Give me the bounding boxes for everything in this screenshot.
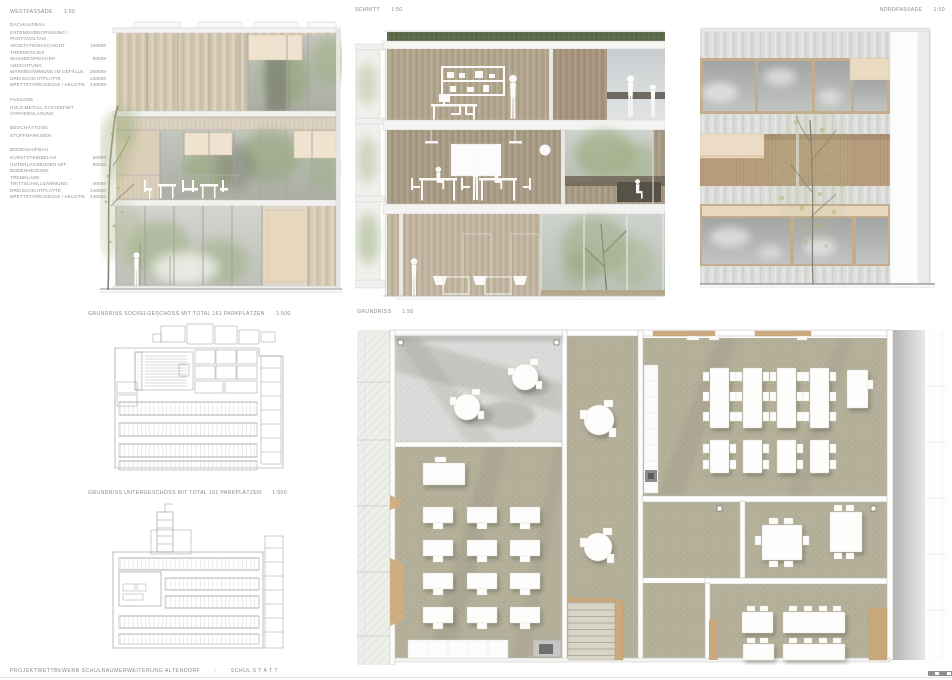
footer-separator: - [214,668,216,674]
fabric-blind [850,58,890,80]
fabric-blind [248,35,302,60]
legend-section-shading: BESCHATTUNG STOFFMARKISEN [10,126,106,139]
title-label: GRUNDRISS [357,309,391,315]
wood-door-frame [709,620,718,660]
balcony-railing-terrace [116,175,240,200]
sockelgeschoss-title: GRUNDRISS SOCKELGESCHOSS MIT TOTAL 161 P… [88,311,291,317]
clock [540,145,551,156]
right-terrace-margin [893,330,947,660]
title-scale: 1:50 [391,7,403,13]
fabric-blind [294,131,338,158]
wood-door-frame [869,608,887,660]
basement-plan-lines [115,324,283,470]
untergeschoss-plan-drawing [95,500,300,662]
page-bottom-edge [0,677,952,678]
parking-stalls [119,558,259,644]
title-scale: 1:50 [402,309,414,315]
main-floor-plan-drawing [357,320,947,665]
north-elevation-title: NORDFASSADE 1:50 [879,7,945,13]
legend-heading: BODENAUFBAU [10,148,106,155]
title-scale: 1:50 [64,9,76,15]
technic-room [119,572,161,606]
legend-heading: BESCHATTUNG [10,126,106,133]
untergeschoss-title: GRUNDRISS UNTERGESCHOSS MIT TOTAL 161 PA… [88,490,287,496]
legend-label: BRETTSTAPELDECKE / AKUSTIK [10,194,85,201]
footer-project: PROJEKTWETTBEWERB SCHULRAUMERWEITERUNG A… [10,668,200,674]
section-floor-ground [387,214,665,296]
west-elevation-drawing [100,16,342,294]
title-scale: 1:500 [272,490,287,496]
west-elevation-title: WESTFASSADE 1:50 [10,9,106,15]
title-label: GRUNDRISS SOCKELGESCHOSS MIT TOTAL 161 P… [88,311,265,317]
legend-section-floor: BODENAUFBAU KUNSTSTEINBELAG20MM UNTERLAG… [10,148,106,201]
stairs [568,598,623,660]
counter [408,640,508,658]
title-label: NORDFASSADE [879,7,922,13]
sockelgeschoss-plan-drawing [95,322,300,484]
legend-heading: FASSADE [10,98,106,105]
garage-plan-lines [113,504,283,648]
wood-sliding-panel [262,210,308,282]
fabric-blind [184,133,232,155]
title-label: SCHNITT [355,7,380,13]
glazed-facade-band [357,330,390,665]
title-label: WESTFASSADE [10,9,53,15]
side-rooms-strip [265,536,283,648]
section-drawing [355,14,665,300]
construction-legend: WESTFASSADE 1:50 DACHAUFBAU EXTENSIVBEGR… [10,9,106,201]
section-floor-middle [387,130,665,204]
legend-section-facade: FASSADE HOLZ-METALL SYSTEM MIT VORVERGLA… [10,98,106,118]
legend-label: STOFFMARKISEN [10,133,51,140]
title-label: GRUNDRISS UNTERGESCHOSS MIT TOTAL 161 PA… [88,490,261,496]
section-facade-strip [355,44,385,288]
legend-label: EXTENSIVBEGRÜNUNG / PHOTOVOLTAIK [10,30,90,43]
legend-label: HOLZ-METALL SYSTEM MIT VORVERGLASUNG [10,105,90,118]
green-roof [383,31,665,49]
west-facade [113,22,342,289]
north-elevation-drawing [700,22,947,294]
section-title: SCHNITT 1:50 [355,7,402,13]
stair-tower [157,512,173,552]
legend-heading: DACHAUFBAU [10,23,106,30]
section-floor-top [387,49,665,120]
title-scale: 1:500 [276,311,291,317]
grundriss-title: GRUNDRISS 1:50 [357,309,414,315]
upper-floor-glazing [248,35,342,113]
parking-stalls [119,402,257,470]
title-scale: 1:50 [934,7,946,13]
awning-box [700,134,764,158]
legend-section-roof: DACHAUFBAU EXTENSIVBEGRÜNUNG / PHOTOVOLT… [10,23,106,89]
legend-label: UNTERLAGSBODEN MIT BODENHEIZUNG [10,162,90,175]
project-footer: PROJEKTWETTBEWERB SCHULRAUMERWEITERUNG A… [10,668,278,674]
architecture-presentation-board: WESTFASSADE 1:50 DACHAUFBAU EXTENSIVBEGR… [0,0,952,680]
scale-bar [928,671,952,676]
upper-glass-band [700,58,890,114]
footer-motto: SCHUL S T A T T [231,668,278,674]
legend-label: BRETTSTAPELDECKE / AKUSTIK [10,82,85,89]
balcony-railing-upper [116,117,338,131]
